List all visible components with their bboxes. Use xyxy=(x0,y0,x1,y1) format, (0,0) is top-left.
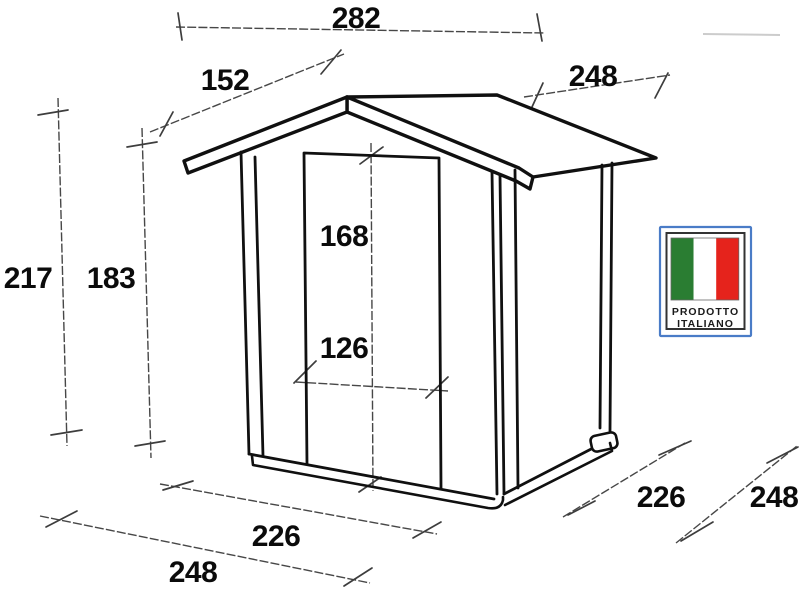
shed-drawing xyxy=(184,95,656,508)
dim-roof-side-depth: 248 xyxy=(524,60,670,107)
shed-rear-foot xyxy=(590,431,619,452)
dim-label-base-front-width: 226 xyxy=(252,520,301,553)
shed-front-wall-bottom xyxy=(249,454,494,499)
shed-corner-trim-right-rear xyxy=(600,163,612,431)
dim-label-wall-height: 183 xyxy=(87,262,136,295)
shed-dimension-diagram: 282 152 248 217 183 xyxy=(0,0,800,595)
dim-door-width: 126 xyxy=(294,332,448,398)
scanned-technical-drawing: 282 152 248 217 183 xyxy=(0,0,800,595)
dim-label-total-height: 217 xyxy=(4,262,53,295)
dim-label-door-width: 126 xyxy=(320,332,369,365)
dim-label-roof-slope-left: 152 xyxy=(201,64,250,97)
badge-prodotto-italiano: PRODOTTO ITALIANO xyxy=(660,227,751,336)
dim-top-width: 282 xyxy=(176,2,545,41)
dim-label-top-width: 282 xyxy=(332,2,381,35)
dim-label-base-side-overall: 248 xyxy=(750,481,799,514)
shed-corner-trim-left xyxy=(241,152,263,456)
dim-base-front-overall: 248 xyxy=(40,511,372,589)
dim-label-base-front-overall: 248 xyxy=(169,556,218,589)
scan-artifact-line xyxy=(703,34,780,35)
dim-label-door-height: 168 xyxy=(320,220,369,253)
shed-base-skid-front xyxy=(252,456,503,508)
flag-stripe-red xyxy=(716,238,739,300)
badge-text-line1: PRODOTTO xyxy=(672,306,739,318)
dim-wall-height: 183 xyxy=(87,128,165,458)
flag-stripe-green xyxy=(671,238,694,300)
dim-total-height: 217 xyxy=(4,98,82,446)
dim-door-height: 168 xyxy=(320,143,383,492)
badge-text-line2: ITALIANO xyxy=(677,318,734,330)
shed-corner-trim-right-front xyxy=(492,170,518,494)
italian-flag-icon xyxy=(671,238,739,300)
dim-label-roof-side-depth: 248 xyxy=(569,60,618,93)
flag-stripe-white xyxy=(694,238,717,300)
dim-base-side-overall: 248 xyxy=(676,446,798,543)
dim-label-base-side-depth: 226 xyxy=(637,481,686,514)
